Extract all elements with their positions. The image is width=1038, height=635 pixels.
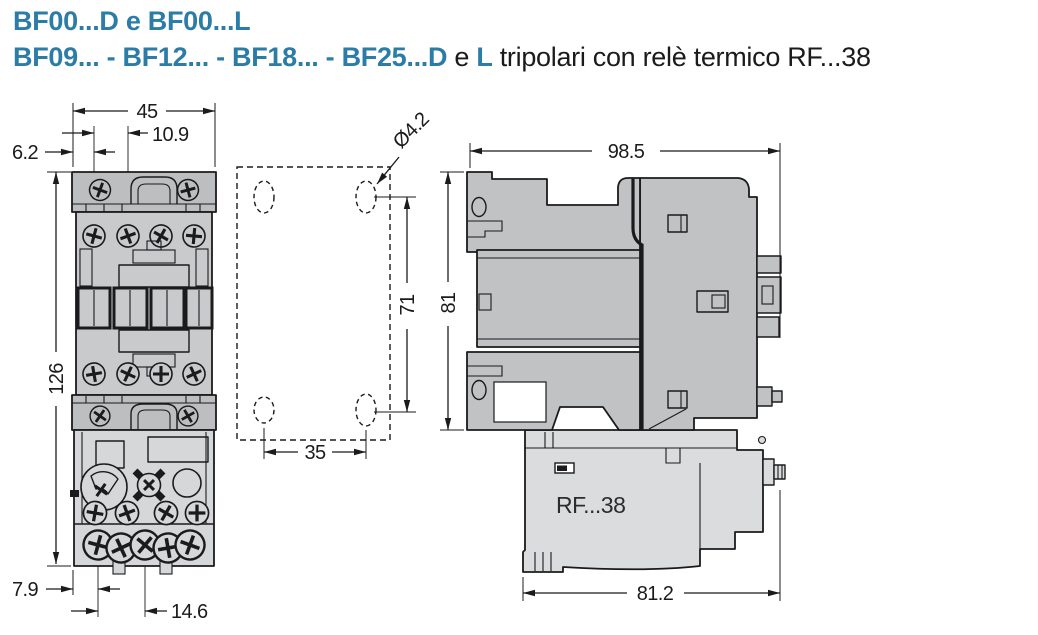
dim-side-height-value: 81: [438, 292, 460, 314]
dim-horizontal-hole-pitch-value: 35: [304, 442, 326, 464]
dim-front-coil-offset: 10.9: [62, 124, 189, 146]
dim-front-edge-offset: 6.2: [12, 142, 115, 164]
relay-marker: [555, 463, 574, 473]
dim-front-bottom-offset-value: 7.9: [12, 579, 38, 601]
relay-test-button: [173, 469, 201, 497]
dim-vertical-hole-pitch-value: 71: [397, 294, 419, 316]
side-contactor-front: [467, 172, 642, 430]
side-power-terminals: [757, 256, 782, 406]
front-top-cap: [72, 172, 216, 212]
dim-front-overall-width: 45: [73, 101, 215, 123]
flange-recess: [494, 382, 546, 422]
side-thermal-relay: RF...38: [523, 430, 785, 572]
datasheet-page: BF00...D e BF00...L BF09... - BF12... - …: [0, 0, 1038, 635]
dim-front-overall-width-value: 45: [136, 101, 158, 123]
side-contactor-rear: [640, 178, 782, 430]
front-view: 45 10.9 6.2 126: [12, 101, 216, 623]
relay-reset-knob: [135, 471, 163, 499]
relay-side-terminal-screw: [763, 459, 785, 485]
side-top-flange: [467, 172, 640, 252]
dim-relay-depth-value: 81.2: [637, 583, 674, 605]
dim-hole-diameter: Ø4.2: [377, 108, 434, 184]
side-view: RF...38: [438, 141, 785, 605]
relay-label: RF...38: [556, 492, 625, 518]
mounting-plan: Ø4.2 71 35: [237, 108, 434, 464]
front-mid-cap: [72, 395, 216, 430]
dim-front-terminal-pitch: 14.6: [71, 601, 208, 623]
dim-front-edge-offset-value: 6.2: [12, 142, 38, 164]
dim-front-overall-height: 126: [46, 172, 68, 564]
dim-front-terminal-pitch-value: 14.6: [171, 601, 208, 623]
side-coil-block: [477, 250, 640, 347]
front-main-body: [76, 212, 212, 395]
dim-hole-diameter-value: Ø4.2: [389, 108, 434, 153]
side-bottom-flange: [467, 352, 640, 430]
dim-front-overall-height-value: 126: [46, 363, 68, 395]
technical-drawing: 45 10.9 6.2 126: [0, 0, 1038, 635]
front-thermal-relay: [70, 430, 214, 574]
mounting-outline: [237, 167, 390, 440]
dim-front-bottom-offset: 7.9: [12, 579, 120, 601]
dim-side-height: 81: [438, 172, 464, 430]
relay-side-latch: [70, 490, 79, 497]
dim-side-overall-depth-value: 98.5: [608, 141, 645, 163]
dim-front-coil-offset-value: 10.9: [152, 124, 189, 146]
